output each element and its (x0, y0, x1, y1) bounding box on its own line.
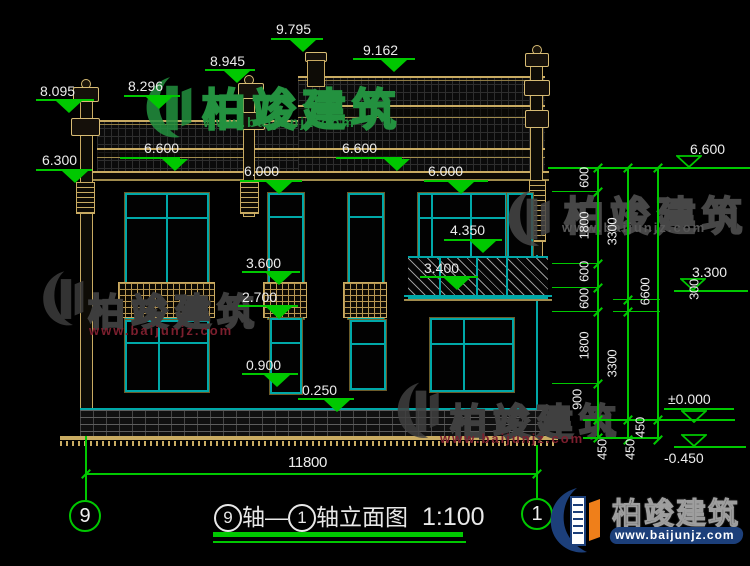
dim-segment-label: 1800 (577, 326, 592, 366)
level-value-label: 0.900 (246, 357, 281, 373)
dim-segment-label: 600 (577, 158, 592, 198)
level-value-label: 6.300 (42, 152, 77, 168)
level-value-label: 9.162 (363, 42, 398, 58)
dim-segment-label: 450 (595, 430, 610, 470)
dim-chain-line (597, 168, 599, 438)
level-value-label: 4.350 (450, 222, 485, 238)
dimension-layer: 柏竣建筑www.baijunjz.com柏竣建筑www.baijunjz.com… (0, 0, 750, 566)
level-triangle-icon (444, 278, 470, 291)
level-triangle-icon (266, 182, 292, 195)
level-triangle-icon (381, 60, 407, 73)
level-value-label: 6.000 (244, 163, 279, 179)
level-value-label: 8.945 (210, 53, 245, 69)
level-triangle-icon (62, 171, 88, 184)
level-triangle-icon (146, 97, 172, 110)
level-triangle-icon (384, 159, 410, 172)
level-value-label: 2.700 (242, 289, 277, 305)
dim-connector (613, 299, 660, 300)
dim-segment-label: 3300 (605, 344, 620, 384)
level-value-label: 6.600 (144, 140, 179, 156)
dim-segment-label: 300 (687, 270, 702, 310)
level-triangle-icon (681, 410, 707, 423)
level-value-label: 3.400 (424, 260, 459, 276)
level-triangle-icon (266, 273, 292, 286)
dim-connector (613, 311, 660, 312)
level-triangle-icon (448, 182, 474, 195)
dim-segment-label: 1800 (577, 206, 592, 246)
watermark-logo-icon (503, 188, 561, 250)
watermark-url: www.baijunjz.com (440, 431, 584, 446)
level-value-label: 8.296 (128, 78, 163, 94)
level-value-label: -0.450 (664, 450, 704, 466)
level-value-label: ±0.000 (668, 391, 711, 407)
level-value-label: 3.600 (246, 255, 281, 271)
level-triangle-icon (264, 375, 290, 388)
level-triangle-icon (224, 71, 250, 84)
level-value-label: 9.795 (276, 21, 311, 37)
level-triangle-icon (681, 434, 707, 447)
watermark-url: www.baijunjz.com (203, 114, 356, 130)
dim-segment-label: 600 (577, 279, 592, 319)
dim-segment-label: 3300 (605, 212, 620, 252)
dim-chain-line (657, 168, 659, 440)
dim-segment-label: 900 (570, 380, 585, 420)
dim-segment-label: 6600 (638, 272, 653, 312)
level-triangle-icon (56, 101, 82, 114)
watermark-url: www.baijunjz.com (89, 323, 233, 338)
level-triangle-icon (266, 307, 292, 320)
level-value-label: 6.000 (428, 163, 463, 179)
level-triangle-icon (470, 241, 496, 254)
level-triangle-icon (162, 159, 188, 172)
cad-elevation-drawing: 11800 9 1 9轴—1轴立面图1:100 柏竣建筑 www.baijunj… (0, 0, 750, 566)
level-value-label: 8.095 (40, 83, 75, 99)
level-value-label: 6.600 (342, 140, 377, 156)
dim-chain-line (627, 168, 629, 440)
watermark-logo-icon (40, 264, 92, 334)
dim-segment-label: 450 (623, 430, 638, 470)
level-triangle-icon (324, 400, 350, 413)
level-triangle-icon (290, 40, 316, 53)
level-value-label: 0.250 (302, 382, 337, 398)
